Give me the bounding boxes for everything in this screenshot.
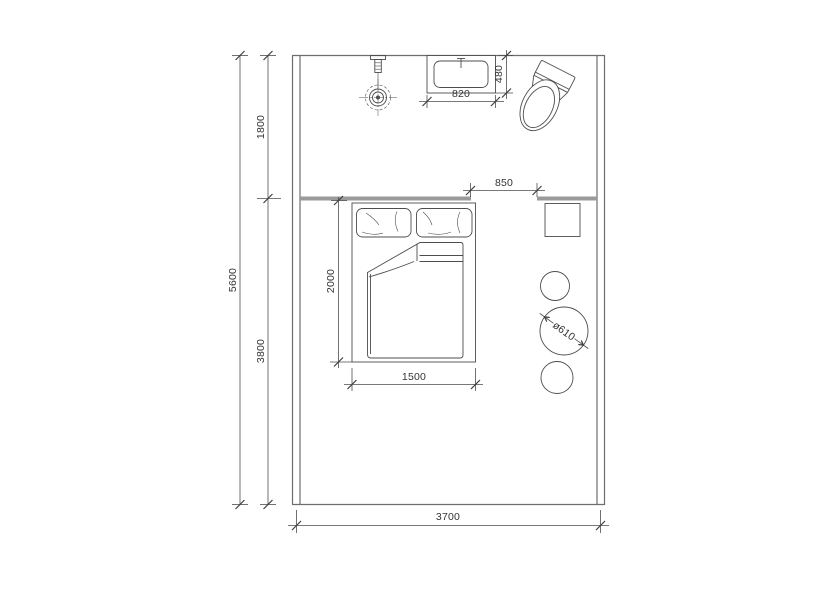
dim-label-basin-depth: 480 [493,65,505,83]
stool-bottom [541,362,573,394]
double-bed-fixture [352,203,476,362]
toilet-fixture [511,60,576,138]
dim-label-bed-width: 1500 [402,371,426,383]
pillow-left [357,209,412,238]
dim-opening-width: 850 [463,177,545,197]
dim-bed-width: 1500 [344,368,483,391]
dim-label-room-width: 3700 [436,511,460,523]
dim-label-bed-length: 2000 [325,269,337,293]
dim-label-basin-width: 820 [452,88,470,100]
dim-label-total-depth: 5600 [227,268,239,292]
dim-room-width: 3700 [288,510,609,533]
shower-head-icon [359,79,397,116]
side-table-fixture [545,204,580,237]
shower-fixture [359,56,397,117]
dim-bed-length: 2000 [325,196,352,368]
dim-zone-depths: 1800 3800 [255,51,281,509]
dim-label-sleep-zone: 3800 [255,339,267,363]
dim-label-opening-width: 850 [495,177,513,189]
pillow-right [417,209,473,238]
dim-basin-depth: 480 [493,50,513,99]
dim-total-depth: 5600 [227,51,248,509]
dim-label-bath-zone: 1800 [255,115,267,139]
stool-top [541,272,570,301]
floor-plan-canvas: 5600 1800 3800 3700 2000 1500 850 [0,0,837,592]
